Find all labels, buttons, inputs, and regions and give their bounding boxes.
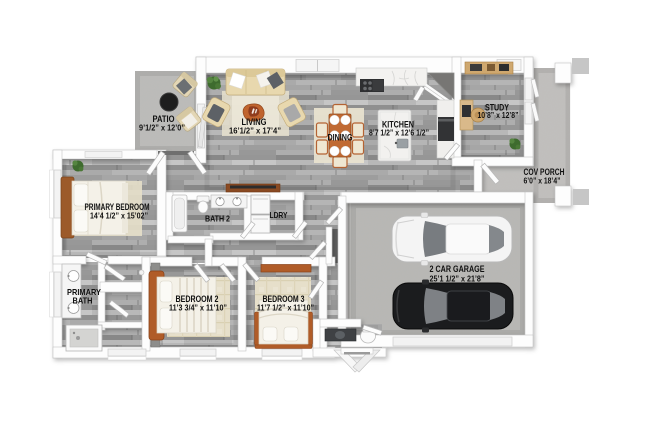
svg-text:9’1/2” x 12’0”: 9’1/2” x 12’0” <box>139 124 185 133</box>
svg-text:2 CAR GARAGE: 2 CAR GARAGE <box>430 264 485 274</box>
svg-text:DINING: DINING <box>328 133 353 143</box>
svg-text:8’7 1/2” x 12’6 1/2”: 8’7 1/2” x 12’6 1/2” <box>369 129 429 138</box>
svg-text:14’4 1/2” x 15’02”: 14’4 1/2” x 15’02” <box>90 212 148 221</box>
svg-text:10’8” x 12’8”: 10’8” x 12’8” <box>478 111 519 120</box>
svg-text:16’1/2” x 17’4”: 16’1/2” x 17’4” <box>229 127 281 136</box>
svg-text:BATH 2: BATH 2 <box>205 214 230 224</box>
svg-text:BEDROOM 2: BEDROOM 2 <box>176 294 219 304</box>
svg-text:LIVING: LIVING <box>242 117 267 127</box>
svg-text:11’3 3/4” x 11’10”: 11’3 3/4” x 11’10” <box>169 304 227 313</box>
svg-text:25’1 1/2” x 21’8”: 25’1 1/2” x 21’8” <box>430 275 485 284</box>
svg-text:PATIO: PATIO <box>153 114 175 124</box>
svg-text:COV PORCH: COV PORCH <box>524 167 565 177</box>
svg-text:6’0” x 18’4”: 6’0” x 18’4” <box>524 177 561 186</box>
svg-text:BEDROOM 3: BEDROOM 3 <box>263 294 305 304</box>
svg-text:LDRY: LDRY <box>270 210 288 220</box>
svg-text:BATH: BATH <box>73 296 93 306</box>
svg-text:11’7 1/2” x 11’10”: 11’7 1/2” x 11’10” <box>257 304 314 313</box>
svg-text:PRIMARY BEDROOM: PRIMARY BEDROOM <box>85 202 150 212</box>
